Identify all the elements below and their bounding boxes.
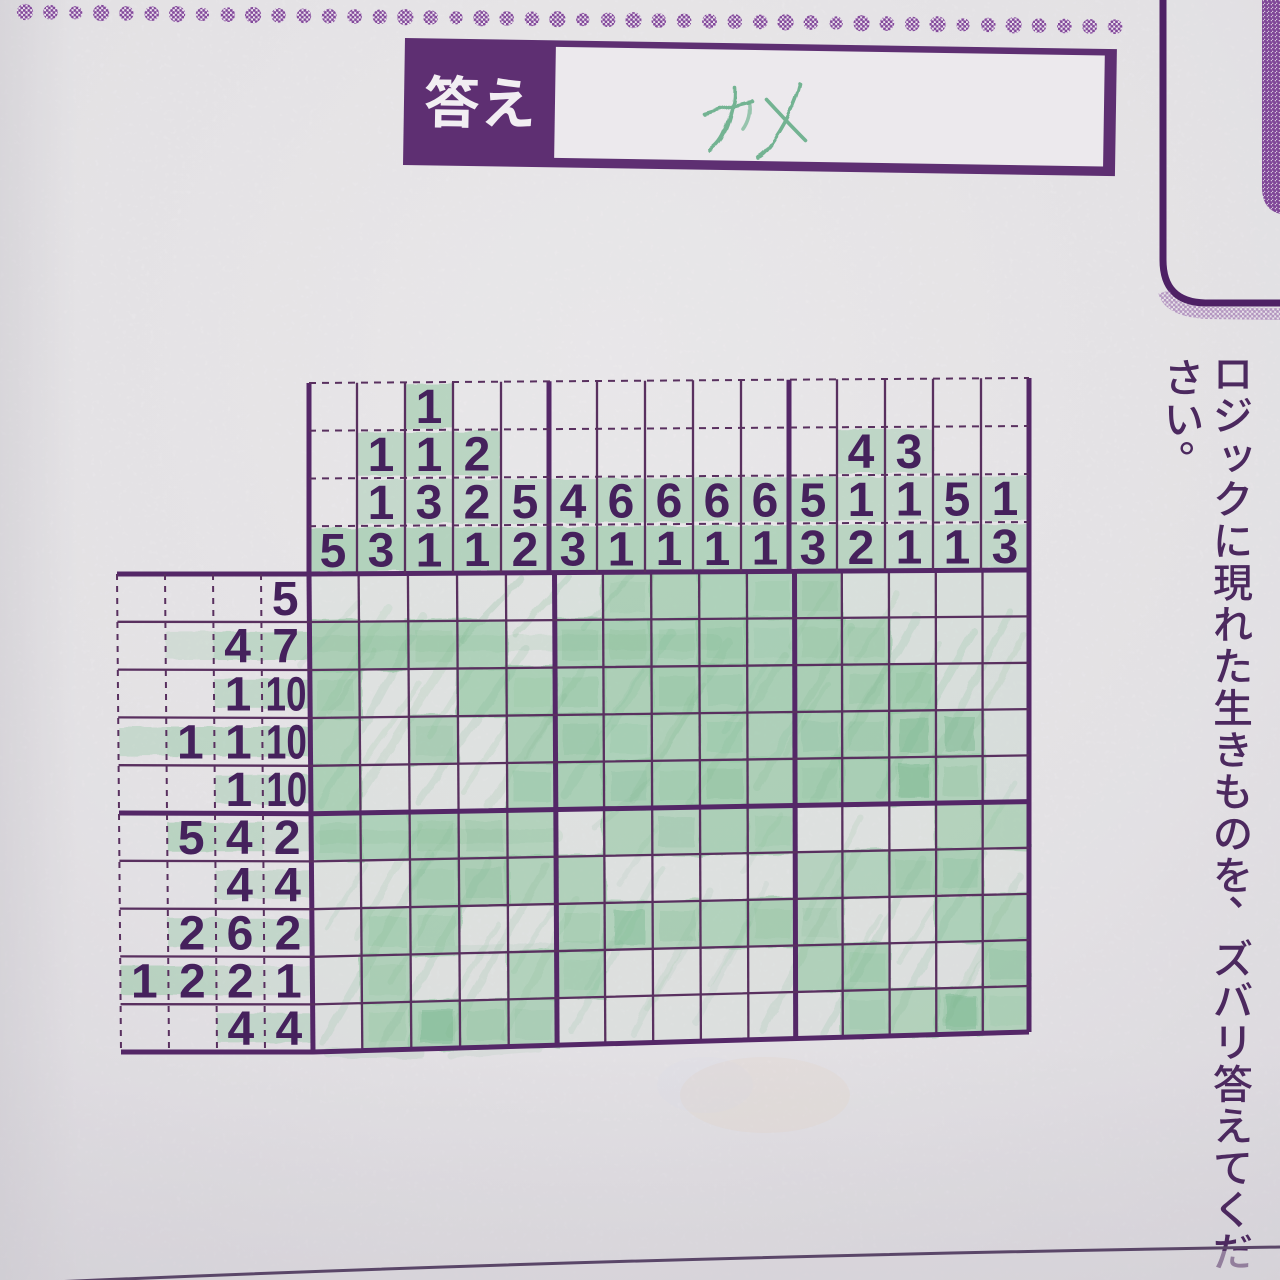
svg-text:5: 5 [178, 812, 205, 865]
svg-text:10: 10 [266, 764, 307, 817]
svg-text:2: 2 [179, 908, 206, 961]
svg-text:5: 5 [512, 476, 539, 529]
svg-text:6: 6 [227, 908, 254, 961]
svg-text:1: 1 [368, 477, 395, 530]
svg-text:1: 1 [992, 473, 1019, 526]
svg-text:2: 2 [464, 429, 491, 482]
svg-text:1: 1 [416, 429, 443, 482]
svg-text:2: 2 [464, 476, 491, 529]
svg-text:1: 1 [752, 523, 779, 576]
svg-text:2: 2 [227, 955, 254, 1008]
svg-text:3: 3 [416, 477, 443, 530]
svg-text:1: 1 [656, 523, 683, 576]
svg-text:4: 4 [848, 426, 875, 479]
svg-text:3: 3 [368, 525, 395, 578]
svg-text:1: 1 [225, 669, 252, 722]
svg-text:2: 2 [179, 955, 206, 1008]
svg-text:1: 1 [416, 381, 443, 434]
svg-text:1: 1 [608, 523, 635, 576]
svg-text:6: 6 [656, 475, 683, 528]
svg-text:5: 5 [800, 474, 827, 527]
svg-text:1: 1 [225, 716, 252, 769]
svg-text:1: 1 [416, 524, 443, 577]
svg-text:4: 4 [274, 860, 301, 913]
svg-text:5: 5 [320, 525, 347, 578]
svg-text:1: 1 [896, 474, 923, 527]
svg-text:10: 10 [266, 669, 307, 722]
svg-text:1: 1 [177, 716, 204, 769]
svg-text:4: 4 [227, 1003, 254, 1056]
svg-text:4: 4 [275, 1003, 302, 1056]
svg-text:3: 3 [800, 522, 827, 575]
svg-text:4: 4 [560, 476, 587, 529]
svg-text:4: 4 [224, 621, 251, 674]
svg-text:4: 4 [226, 860, 253, 913]
svg-text:2: 2 [275, 908, 302, 961]
svg-text:7: 7 [272, 621, 299, 674]
svg-text:1: 1 [944, 521, 971, 574]
svg-text:1: 1 [225, 764, 252, 817]
svg-text:5: 5 [944, 473, 971, 526]
svg-text:1: 1 [131, 955, 158, 1008]
svg-text:6: 6 [752, 475, 779, 528]
svg-text:2: 2 [848, 522, 875, 575]
svg-text:3: 3 [896, 426, 923, 479]
svg-text:3: 3 [560, 524, 587, 577]
svg-text:5: 5 [272, 573, 299, 626]
svg-text:1: 1 [275, 955, 302, 1008]
svg-text:6: 6 [608, 476, 635, 529]
svg-text:2: 2 [512, 524, 539, 577]
svg-text:4: 4 [226, 812, 253, 865]
svg-text:1: 1 [704, 523, 731, 576]
svg-text:3: 3 [992, 521, 1019, 574]
svg-text:1: 1 [896, 522, 923, 575]
svg-text:1: 1 [464, 524, 491, 577]
svg-text:2: 2 [274, 812, 301, 865]
svg-text:1: 1 [848, 474, 875, 527]
svg-text:10: 10 [266, 716, 307, 769]
svg-text:6: 6 [704, 475, 731, 528]
svg-text:1: 1 [368, 429, 395, 482]
